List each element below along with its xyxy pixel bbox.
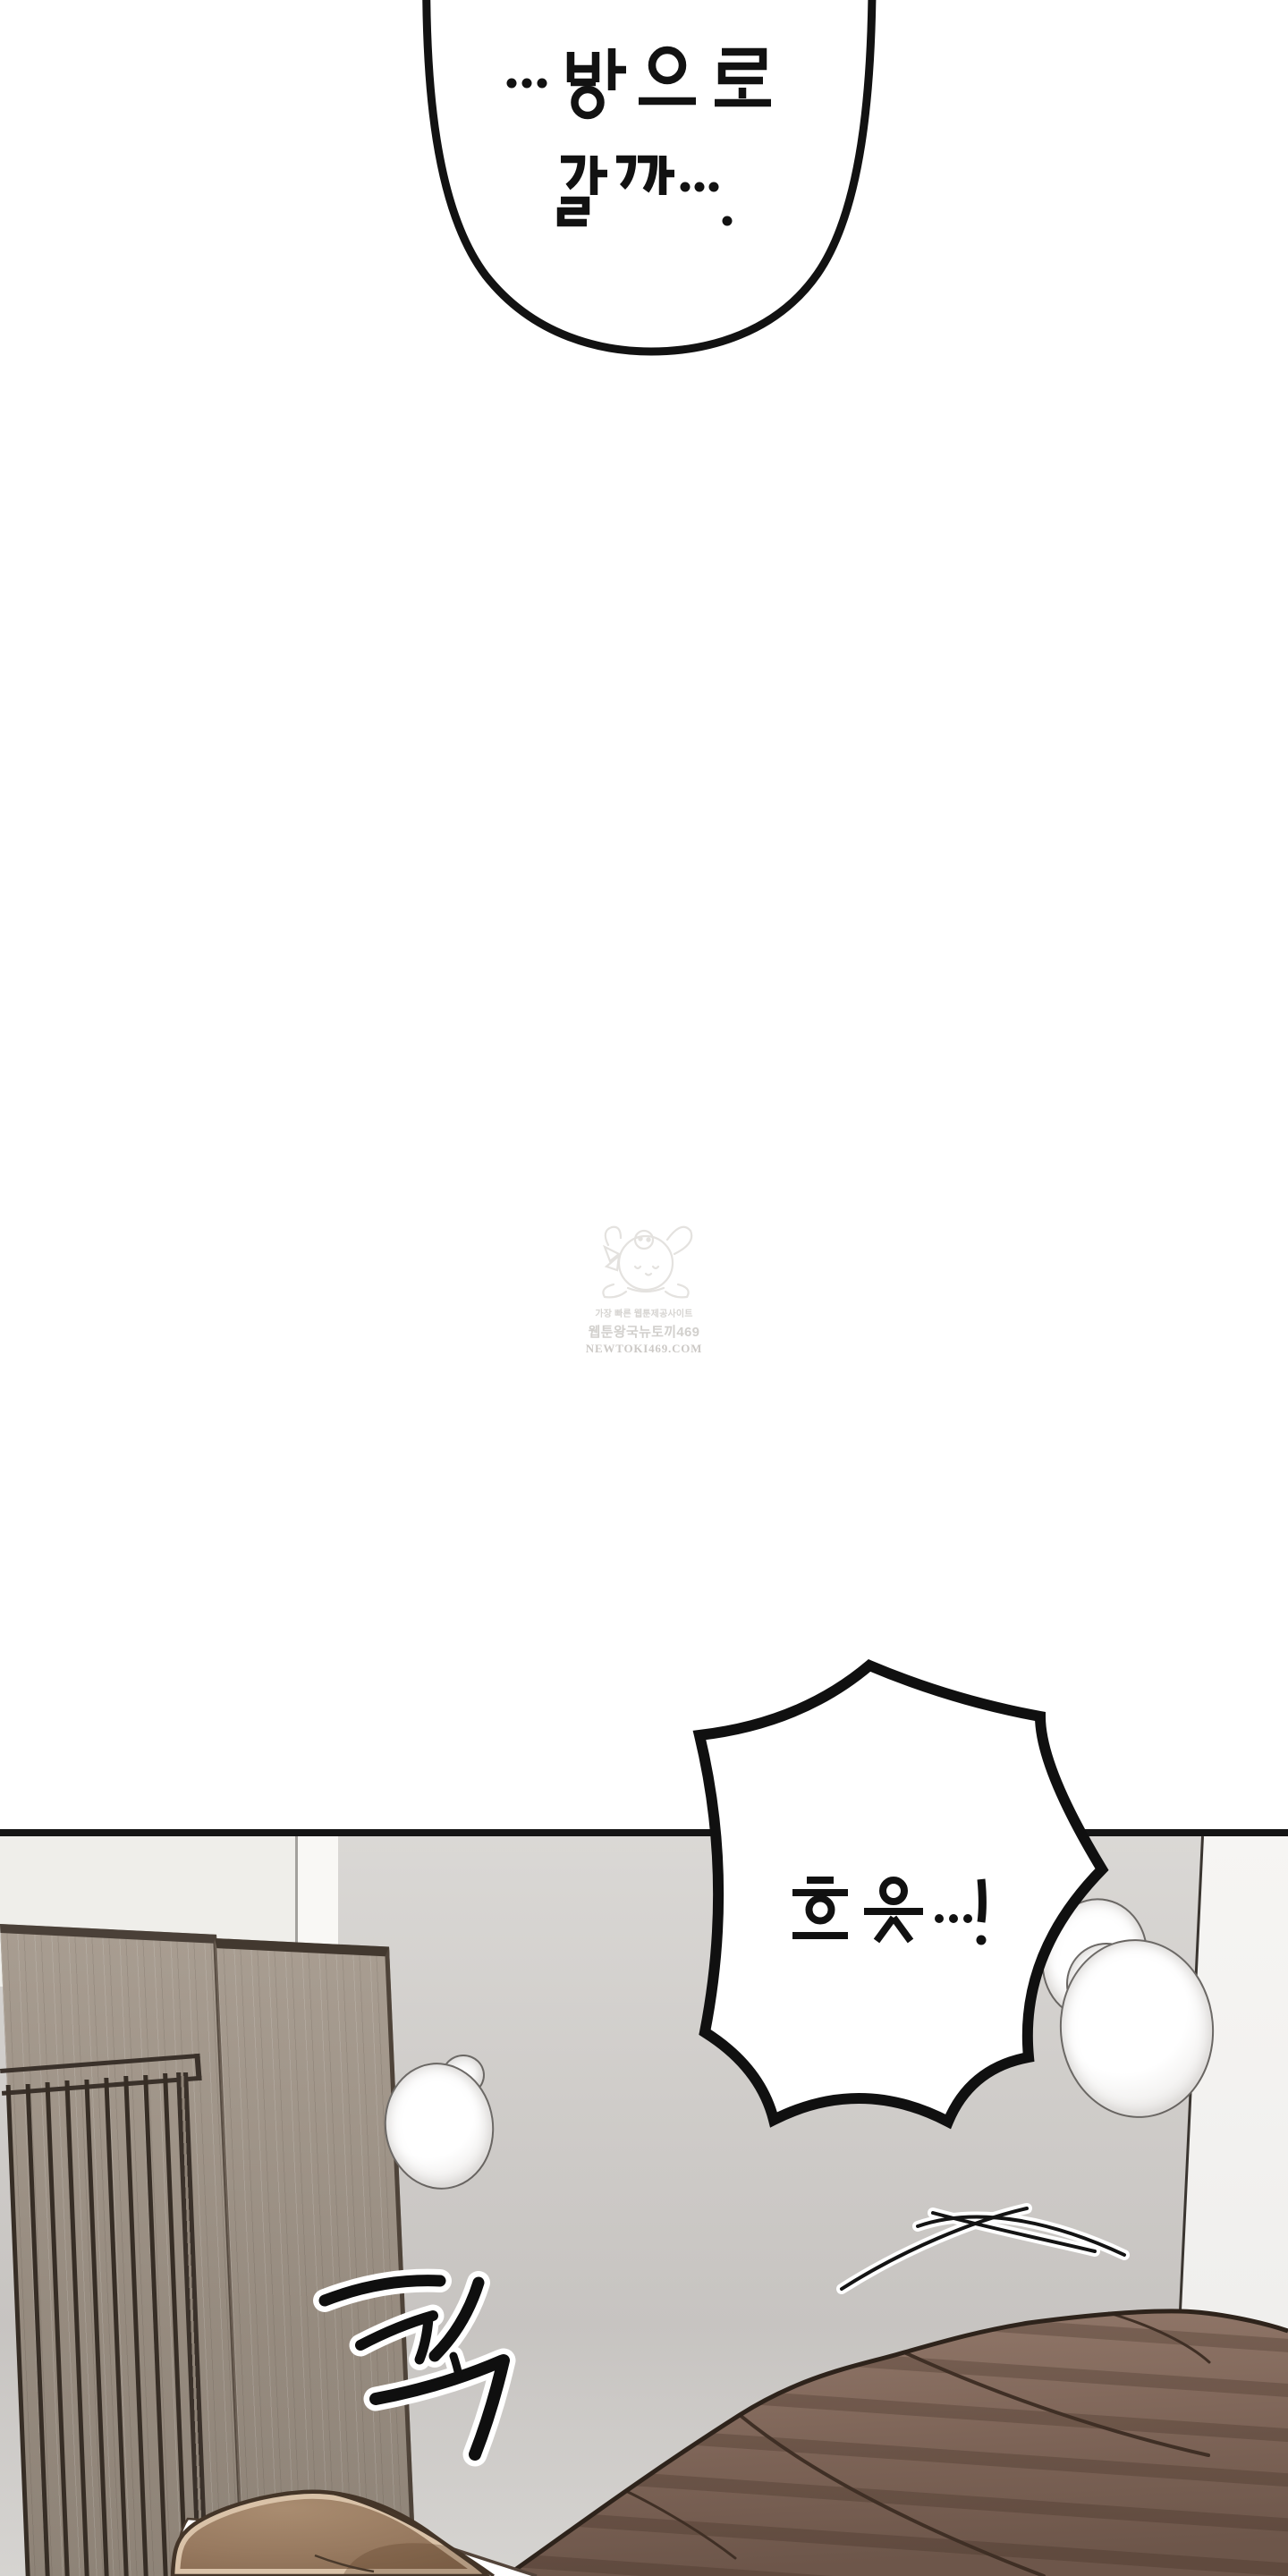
watermark-url: NEWTOKI469.COM bbox=[578, 1342, 710, 1356]
burst-speech-bubble bbox=[662, 1637, 1136, 2151]
watermark-site-name: 웹툰왕국뉴토끼469 bbox=[578, 1322, 710, 1341]
watermark: 가장 빠른 웹툰제공사이트 웹툰왕국뉴토끼469 NEWTOKI469.COM bbox=[578, 1209, 710, 1363]
motion-lines bbox=[842, 2208, 1124, 2289]
striped-blanket bbox=[506, 2311, 1288, 2576]
webtoon-page: { "bubbles": { "top": { "line1": "…방으로",… bbox=[0, 0, 1288, 2576]
watermark-mascot-illustration bbox=[578, 1209, 710, 1309]
watermark-tagline: 가장 빠른 웹툰제공사이트 bbox=[578, 1306, 710, 1319]
sfx-impact-strokes bbox=[325, 2281, 504, 2454]
person-head-hair bbox=[173, 2492, 494, 2576]
top-speech-bubble bbox=[0, 0, 1288, 411]
